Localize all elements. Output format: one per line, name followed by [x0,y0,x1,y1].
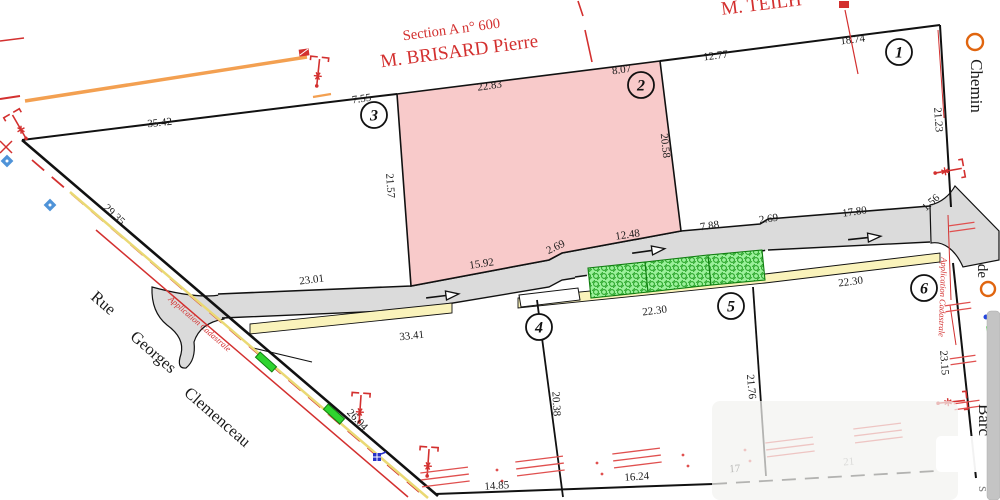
cadastral-plan-canvas: 35.42 29.35 7.55 22.83 8.07 12.77 18.74 … [0,0,1000,500]
parcel-number-4: 4 [526,314,552,340]
owner-teilh-label: M. TEILH [720,0,803,20]
chemin-marker-circle-icon [967,34,983,50]
measurement-label: 29.35 [101,202,128,228]
measurement-label: 22.30 [838,274,865,289]
boundary-top-left [22,94,397,140]
parcel-number-1: 1 [886,39,912,65]
green-block-2 [645,255,711,292]
hedge-icon [612,448,661,468]
street-georges-label: Georges [127,327,181,377]
parcel-number-5: 5 [718,293,744,319]
red-line-top-center [578,1,592,62]
measurement-label: 21.23 [931,107,945,133]
survey-mark-icon [308,56,329,89]
street-clemenceau-label: Clemenceau [181,383,255,451]
measurement-label: 35.42 [147,116,173,131]
street-chemin-label: Chemin [967,59,986,113]
chemin-marker-circle-icon [981,282,995,296]
svg-text:2: 2 [636,78,645,95]
measurement-label: 22.30 [642,303,669,318]
street-de-label: de [974,264,990,279]
measurement-label: 33.41 [399,329,425,344]
measurement-label: 21.76 [744,374,758,400]
washed-overlay [712,401,958,500]
yellow-line-diagonal [70,192,428,498]
svg-text:4: 4 [534,320,543,337]
street-rue-label: Rue [87,287,120,319]
application-cadastrale-right-label: Application Cadastrale [937,256,950,337]
svg-text:5: 5 [727,299,735,316]
red-solid-diagonal [96,230,408,497]
svg-text:6: 6 [920,281,928,298]
measurement-label: 23.01 [299,273,325,288]
svg-text:1: 1 [895,45,903,62]
measurement-label: 14.85 [484,479,510,493]
survey-mark-icon [418,446,438,478]
red-segment-left-mid [0,96,20,99]
measurement-label: 18.74 [840,32,867,47]
red-segment-left-top [0,38,24,41]
measurement-label: 16.24 [624,470,650,484]
red-marker-orange-end [299,48,310,56]
green-block-3 [708,250,765,285]
measurement-label: 21.57 [383,173,397,199]
blue-diamond-icon [44,199,57,212]
white-tooltip-box [936,436,992,472]
orange-tick [313,94,331,97]
scrollbar[interactable] [987,311,1000,500]
parcel-number-3: 3 [361,102,387,128]
orange-boundary-line [25,57,307,101]
red-x-mark [0,141,12,153]
boundary-bottom [435,484,713,494]
measurement-label: 12.77 [703,48,730,63]
green-block-1 [588,262,648,298]
ui-overlays [712,311,1000,500]
measurement-label: 23.15 [937,350,951,376]
measurement-label: 20.38 [549,391,562,417]
blue-diamond-icon [1,155,14,168]
parcel-number-6: 6 [911,275,937,301]
svg-text:3: 3 [369,108,378,125]
